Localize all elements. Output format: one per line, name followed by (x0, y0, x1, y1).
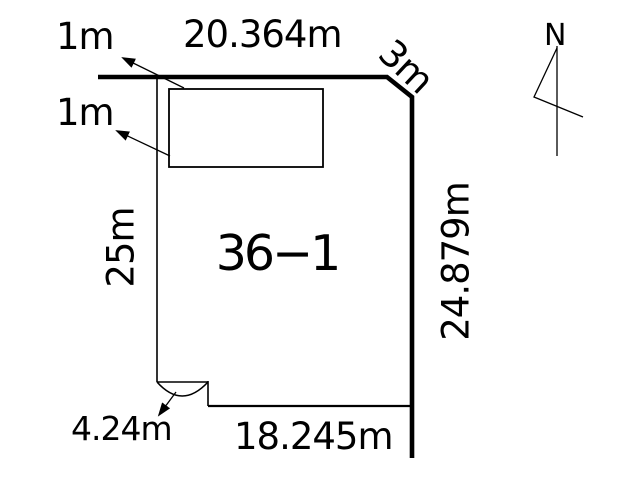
setback-left-leader-arrow (117, 131, 170, 156)
north-compass: N (534, 18, 583, 156)
compass-pennant-line (534, 48, 583, 117)
bottom-edge-dimension-label: 18.245m (234, 418, 393, 455)
parcel-number-label: 36−1 (177, 229, 377, 278)
right-edge-dimension-label: 24.879m (438, 177, 475, 347)
setback-top-dimension-label: 1m (56, 18, 114, 55)
building-outline (169, 89, 323, 167)
left-edge-dimension-label: 25m (103, 203, 140, 293)
parcel-plot-diagram: N 1m 1m 20.364m 3m 24.879m 25m 36−1 4.24… (0, 0, 640, 480)
corner-arc-dimension-label: 4.24m (71, 412, 172, 445)
corner-arc (157, 382, 208, 396)
north-label: N (544, 18, 566, 53)
top-edge-dimension-label: 20.364m (183, 16, 342, 53)
setback-top-leader-arrow (123, 58, 184, 88)
setback-left-dimension-label: 1m (56, 94, 114, 131)
